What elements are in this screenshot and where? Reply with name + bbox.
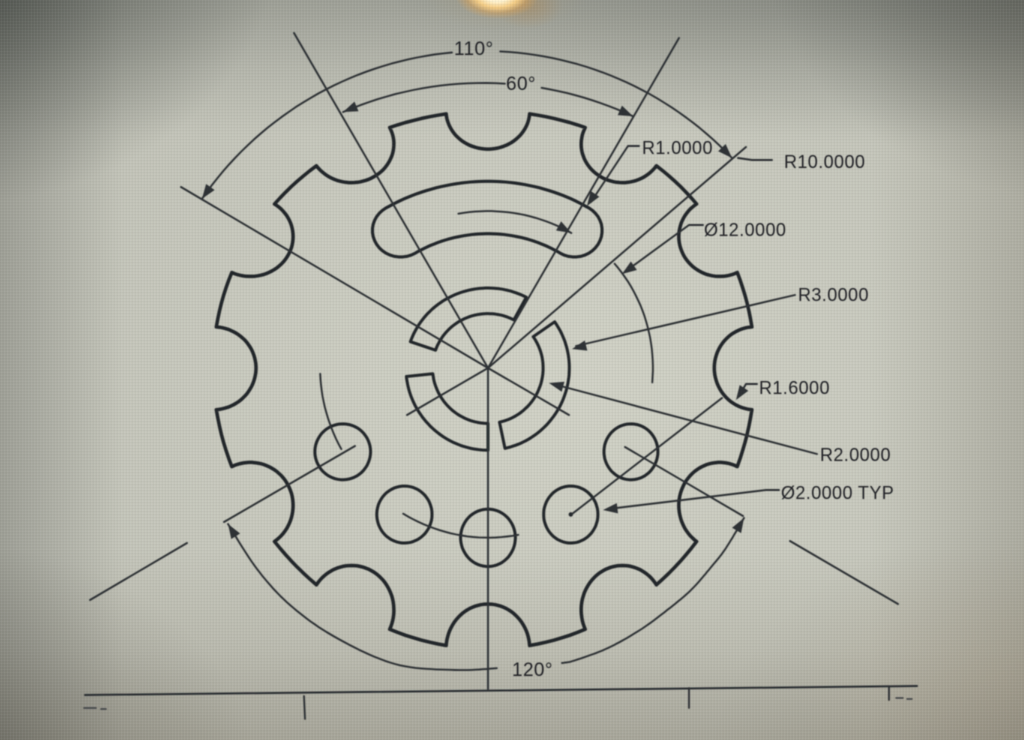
svg-text:Ø12.0000: Ø12.0000 [704, 220, 786, 240]
svg-text:60°: 60° [506, 74, 536, 95]
svg-text:R1.0000: R1.0000 [642, 138, 713, 158]
svg-text:R10.0000: R10.0000 [784, 152, 865, 172]
svg-text:R2.0000: R2.0000 [820, 445, 891, 465]
svg-text:120°: 120° [512, 660, 553, 681]
svg-text:Ø2.0000 TYP: Ø2.0000 TYP [781, 483, 894, 503]
svg-text:110°: 110° [454, 39, 494, 60]
svg-text:R3.0000: R3.0000 [798, 285, 869, 305]
svg-text:R1.6000: R1.6000 [759, 378, 830, 398]
